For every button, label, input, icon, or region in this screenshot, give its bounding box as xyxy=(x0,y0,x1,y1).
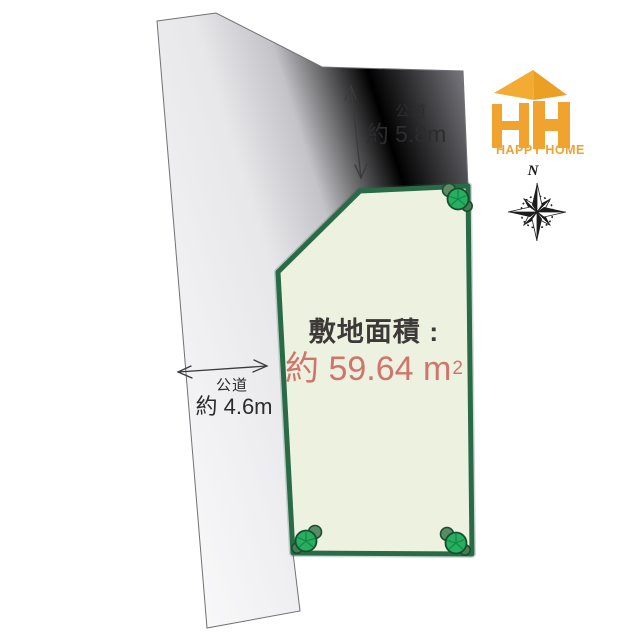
site-area-value-text: 約 59.64 m xyxy=(285,350,451,388)
compass-north-label: N xyxy=(516,163,550,180)
road-top-width-label: 約 5.8m xyxy=(346,122,466,147)
land-plot-diagram: 公道 約 5.8m 公道 約 4.6m 敷地面積 : 約 59.64 m2 HA… xyxy=(0,0,640,640)
road-left-width-label: 約 4.6m xyxy=(172,395,296,419)
happy-home-logo-text: HAPPY HOME xyxy=(496,144,584,158)
site-area-label: 敷地面積 : xyxy=(254,318,494,348)
site-area-value: 約 59.64 m2 xyxy=(234,351,514,388)
compass-icon xyxy=(508,183,566,241)
site-area-unit-superscript: 2 xyxy=(452,358,463,379)
road-top-type-label: 公道 xyxy=(371,104,451,121)
happy-home-logo-icon xyxy=(492,70,570,149)
